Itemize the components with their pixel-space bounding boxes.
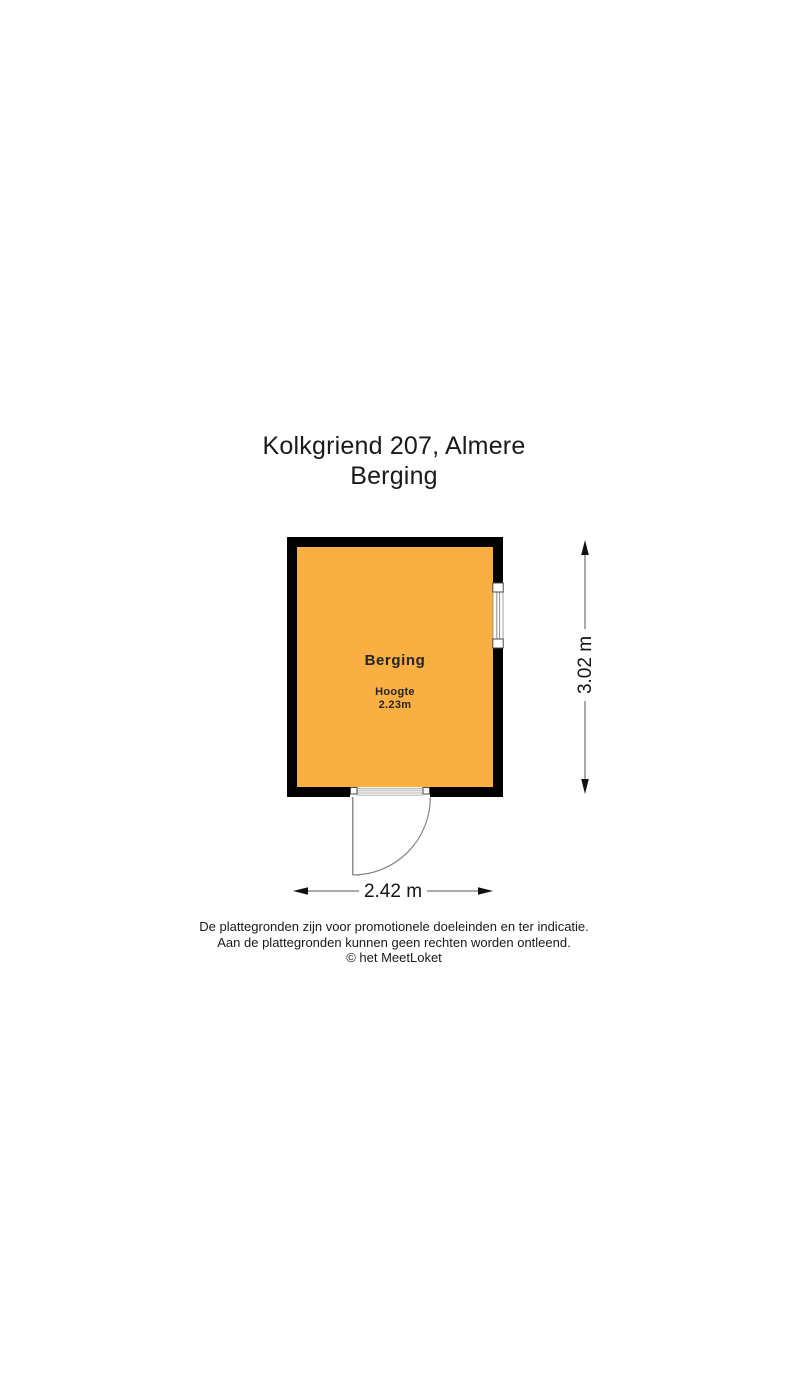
arrow-down-icon (581, 779, 589, 794)
dimension-height-text: 3.02 m (575, 636, 596, 694)
disclaimer-line-1: De plattegronden zijn voor promotionele … (0, 919, 788, 935)
disclaimer-line-2: Aan de plattegronden kunnen geen rechten… (0, 935, 788, 951)
window-right-wall (493, 583, 503, 648)
room-height-label: Hoogte (375, 686, 415, 698)
disclaimer-copyright: © het MeetLoket (0, 950, 788, 966)
door-bottom-wall (350, 787, 430, 875)
arrow-up-icon (581, 540, 589, 555)
dimension-height: 3.02 m (575, 540, 596, 794)
disclaimer: De plattegronden zijn voor promotionele … (0, 919, 788, 966)
arrow-left-icon (293, 887, 308, 895)
room-height-value: 2.23m (379, 699, 412, 711)
floorplan-page: Kolkgriend 207, Almere Berging (0, 0, 788, 1400)
door-jamb (423, 788, 430, 795)
window-jamb (493, 639, 503, 648)
window-frame (493, 583, 503, 648)
dimension-width: 2.42 m (293, 881, 493, 902)
floor-plan-canvas: Berging Hoogte 2.23m 3.02 m 2.42 m (0, 0, 788, 1400)
dimension-width-text: 2.42 m (364, 881, 422, 902)
door-jamb (351, 788, 358, 795)
door-swing-arc (353, 798, 431, 876)
arrow-right-icon (478, 887, 493, 895)
window-jamb (493, 583, 503, 592)
room-label: Berging (365, 652, 426, 669)
